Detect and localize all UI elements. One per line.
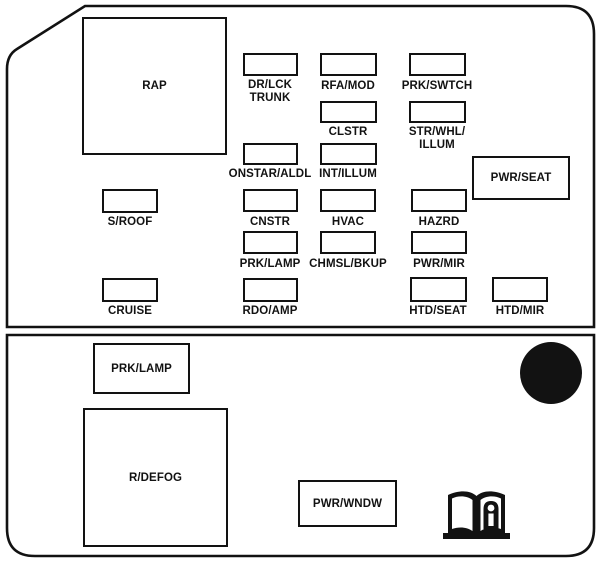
fuse-dr-lck-trunk — [243, 53, 298, 76]
fuse-label-r-defog: R/DEFOG — [129, 472, 182, 484]
fuse-pwr-wndw: PWR/WNDW — [298, 480, 397, 527]
fuse-chmsl-bkup — [320, 231, 376, 254]
fuse-clstr — [320, 101, 377, 123]
fuse-str-whl-illum — [409, 101, 466, 123]
fuse-label-s-roof: S/ROOF — [65, 216, 195, 229]
fuse-htd-mir — [492, 277, 548, 302]
fuse-r-defog: R/DEFOG — [83, 408, 228, 547]
fuse-label-cruise: CRUISE — [65, 305, 195, 318]
fuse-label-prk-lamp-bottom: PRK/LAMP — [111, 363, 172, 375]
fuse-pwr-mir — [411, 231, 467, 254]
fuse-s-roof — [102, 189, 158, 213]
fuse-label-prk-swtch: PRK/SWTCH — [372, 80, 502, 93]
fuse-label-htd-mir: HTD/MIR — [455, 305, 585, 318]
fuse-label-pwr-mir: PWR/MIR — [374, 258, 504, 271]
owners-manual-icon — [443, 491, 510, 539]
fuse-rdo-amp — [243, 278, 298, 302]
fuse-prk-lamp-bottom: PRK/LAMP — [93, 343, 190, 394]
fuse-prk-swtch — [409, 53, 466, 76]
fuse-cnstr — [243, 189, 298, 212]
fuse-int-illum — [320, 143, 377, 165]
fuse-onstar-aldl — [243, 143, 298, 165]
fuse-hvac — [320, 189, 376, 212]
fuse-label-str-whl-illum: STR/WHL/ ILLUM — [372, 126, 502, 152]
fuse-label-int-illum: INT/ILLUM — [283, 168, 413, 181]
fuse-label-pwr-wndw: PWR/WNDW — [313, 498, 382, 510]
fuse-label-rap: RAP — [142, 80, 167, 92]
fuse-cruise — [102, 278, 158, 302]
fuse-label-hazrd: HAZRD — [374, 216, 504, 229]
fuse-label-pwr-seat: PWR/SEAT — [491, 172, 552, 184]
fuse-prk-lamp-top — [243, 231, 298, 254]
fuse-hazrd — [411, 189, 467, 212]
fuse-label-rdo-amp: RDO/AMP — [205, 305, 335, 318]
black-circle-marker — [520, 342, 582, 404]
fuse-htd-seat — [410, 277, 467, 302]
fuse-pwr-seat: PWR/SEAT — [472, 156, 570, 200]
fuse-rfa-mod — [320, 53, 377, 76]
fuse-block-panel: RAP DR/LCK TRUNK RFA/MOD PRK/SWTCH CLSTR… — [0, 0, 600, 566]
